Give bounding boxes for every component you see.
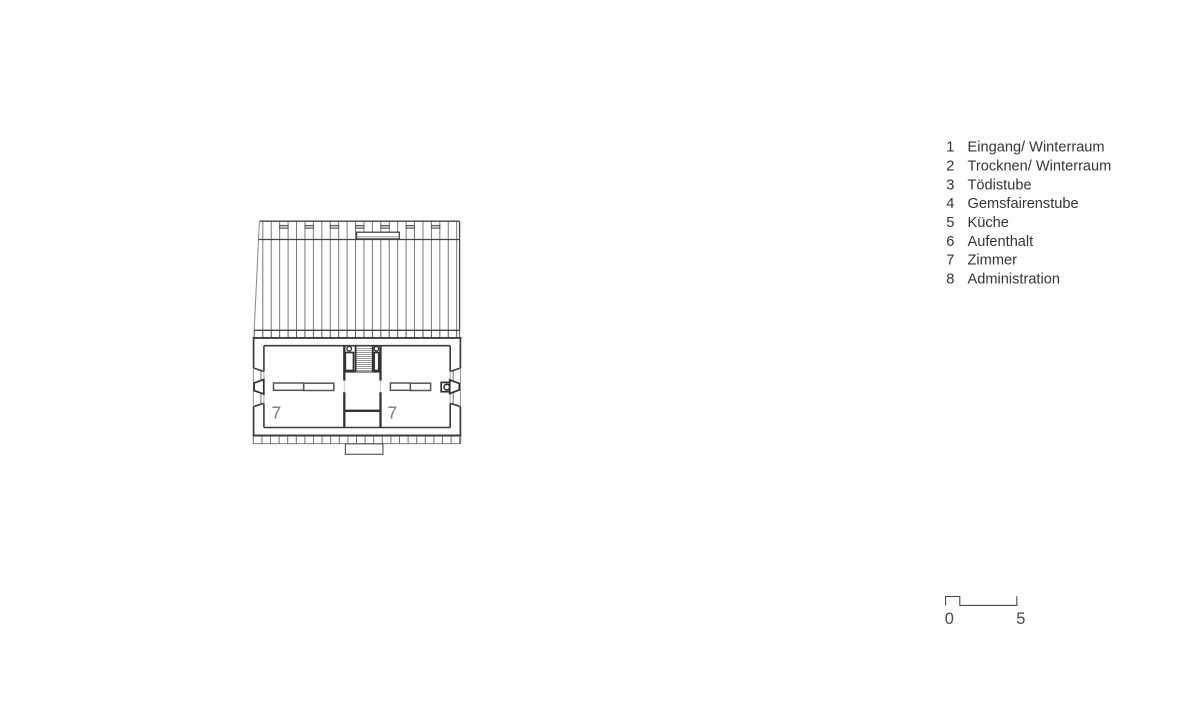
svg-text:7: 7	[388, 402, 398, 422]
svg-text:Trocknen/ Winterraum: Trocknen/ Winterraum	[968, 159, 1112, 175]
svg-text:5: 5	[946, 215, 954, 231]
svg-text:1: 1	[946, 140, 954, 156]
svg-text:Aufenthalt: Aufenthalt	[968, 234, 1034, 250]
svg-text:Tödistube: Tödistube	[968, 177, 1032, 193]
svg-text:2: 2	[946, 159, 954, 175]
svg-text:7: 7	[272, 402, 282, 422]
svg-text:6: 6	[946, 234, 954, 250]
svg-text:Eingang/ Winterraum: Eingang/ Winterraum	[968, 140, 1105, 156]
svg-text:5: 5	[1016, 610, 1025, 628]
svg-text:Gemsfairenstube: Gemsfairenstube	[968, 196, 1079, 212]
svg-text:Zimmer: Zimmer	[968, 253, 1018, 269]
svg-text:7: 7	[946, 253, 954, 269]
svg-text:4: 4	[946, 196, 954, 212]
svg-text:0: 0	[945, 610, 954, 628]
svg-text:8: 8	[946, 272, 954, 288]
svg-text:3: 3	[946, 177, 954, 193]
svg-text:Küche: Küche	[968, 215, 1009, 231]
svg-text:Administration: Administration	[968, 272, 1060, 288]
